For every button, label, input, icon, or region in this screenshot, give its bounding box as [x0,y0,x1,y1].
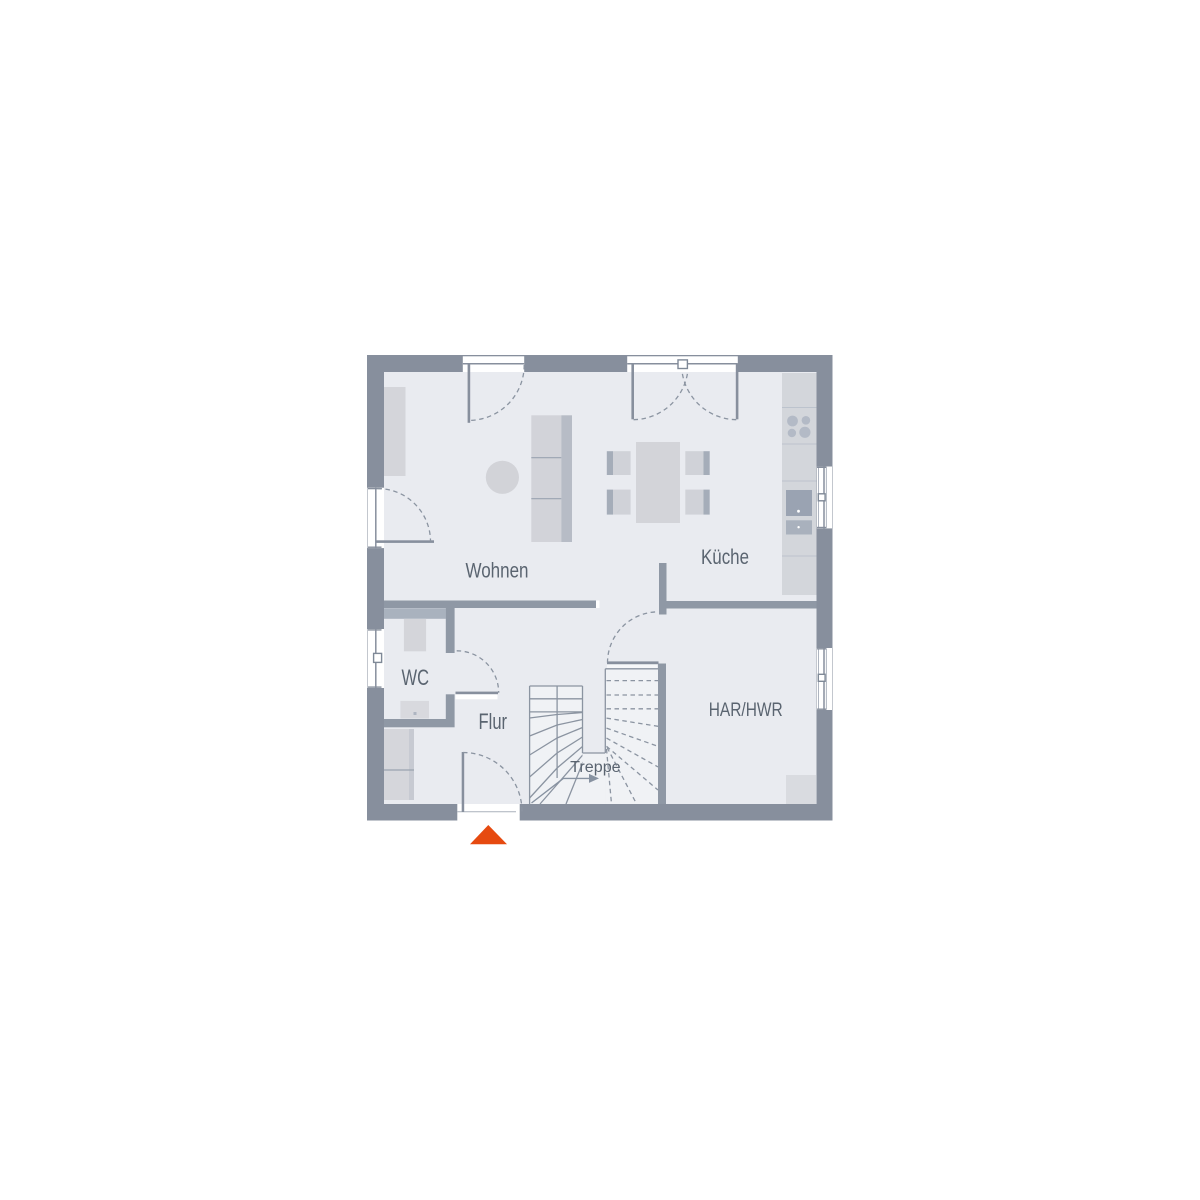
svg-text:Treppe: Treppe [570,759,621,776]
svg-text:Küche: Küche [701,546,749,569]
svg-text:Flur: Flur [479,709,508,734]
svg-text:WC: WC [402,665,430,690]
svg-text:Wohnen: Wohnen [466,560,529,583]
svg-text:HAR/HWR: HAR/HWR [709,700,783,721]
